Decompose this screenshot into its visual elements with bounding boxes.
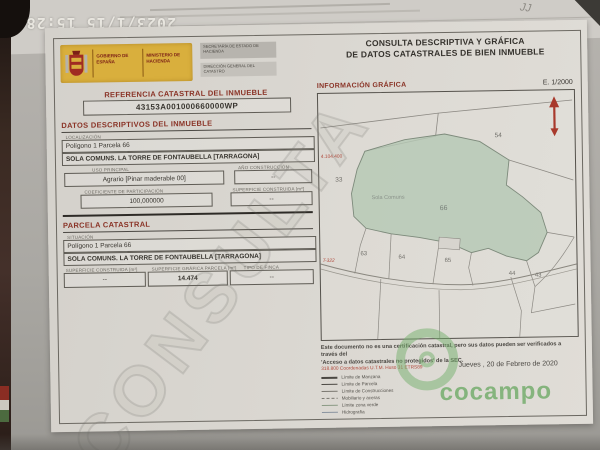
logo-divider (92, 50, 93, 78)
legend-line-sample (321, 376, 337, 378)
document-title: CONSULTA DESCRIPTIVA Y GRÁFICA DE DATOS … (316, 35, 574, 62)
logo-divider (142, 49, 143, 77)
map-legend: Límite de Manzana Límite de Parcela Lími… (321, 373, 393, 416)
legend-line-sample (321, 384, 337, 385)
direccion-box: DIRECCIÓN GENERAL DEL CATASTRO (200, 62, 276, 77)
spine-segment (0, 410, 9, 422)
legend-line-sample (322, 412, 338, 413)
legend-label: Límite zona verde (342, 402, 379, 408)
road-label: T-322 (323, 258, 336, 264)
spine-segment (0, 400, 9, 410)
cocampo-wordmark: cocampo (439, 377, 552, 407)
area-name-label: Sola Comuns (372, 195, 405, 202)
anio-value: -- (234, 169, 312, 184)
ministerio-label: MINISTERIO DE HACIENDA (146, 52, 190, 64)
legend-item: Hidrografía (322, 408, 394, 416)
handwritten-mark: JJ (519, 1, 532, 14)
escala-label: E. 1/2000 (543, 79, 573, 86)
spine-segment (0, 386, 9, 400)
legend-line-sample (322, 398, 338, 399)
spain-coat-of-arms-icon (64, 49, 88, 79)
gobierno-label: GOBIERNO DE ESPAÑA (96, 53, 140, 65)
document-date: Jueves , 20 de Febrero de 2020 (439, 360, 577, 369)
datos-heading: DATOS DESCRIPTIVOS DEL INMUEBLE (61, 117, 311, 133)
situacion-line2: SOLA COMUNS. LA TORRE DE FONTAUBELLA [TA… (63, 249, 316, 266)
section-divider (63, 211, 313, 217)
photo-bottom-shadow (0, 434, 600, 450)
secretaria-box: SECRETARÍA DE ESTADO DE HACIENDA (200, 42, 276, 59)
sup-construida-value: -- (64, 272, 146, 288)
uso-value: Agrario [Pinar maderable 00] (64, 170, 224, 187)
informacion-grafica-heading: INFORMACIÓN GRÁFICA (317, 82, 407, 90)
referencia-value: 43153A001000660000WP (83, 97, 291, 115)
parcela-heading: PARCELA CATASTRAL (63, 217, 313, 233)
legend-line-sample (322, 405, 338, 406)
parcel-63-label: 63 (360, 251, 367, 257)
superficie-value: -- (230, 191, 312, 206)
document-sheet: GOBIERNO DE ESPAÑA MINISTERIO DE HACIEND… (45, 20, 593, 432)
legend-label: Hidrografía (342, 409, 365, 414)
photo-of-cadastral-document: 2023/1/15 15:28 JJ GOBIERNO DE (0, 0, 600, 450)
left-column: GOBIERNO DE ESPAÑA MINISTERIO DE HACIEND… (60, 39, 316, 419)
coef-value: 100,000000 (80, 193, 212, 209)
cadastral-map: 54 33 66 Sola Comuns 63 64 65 44 43 4.10… (317, 89, 579, 341)
utm-coordinate-label: 4.104.400 (321, 154, 343, 160)
legend-line-sample (322, 391, 338, 392)
legend-label: Límite de Construcciones (342, 388, 394, 394)
legend-label: Límite de Manzana (341, 374, 380, 380)
sup-grafica-value: 14.474 (148, 270, 228, 286)
book-spine (0, 0, 11, 450)
parcel-54-label: 54 (495, 132, 503, 139)
parcel-43-label: 43 (535, 273, 542, 279)
parcel-44-label: 44 (509, 271, 516, 277)
cocampo-logo-inner-icon (419, 351, 435, 367)
localizacion-line2: SOLA COMUNS. LA TORRE DE FONTAUBELLA [TA… (62, 149, 315, 166)
subject-parcel-label: 66 (440, 205, 448, 212)
gobierno-logo: GOBIERNO DE ESPAÑA MINISTERIO DE HACIEND… (60, 43, 193, 83)
map-drawing: 54 33 66 Sola Comuns 63 64 65 44 43 4.10… (318, 90, 578, 340)
document-border: GOBIERNO DE ESPAÑA MINISTERIO DE HACIEND… (53, 30, 587, 424)
legend-label: Límite de Parcela (341, 381, 377, 387)
parcel-33-label: 33 (335, 177, 343, 184)
parcel-64-label: 64 (398, 255, 405, 261)
legend-label: Mobiliario y aceras (342, 395, 380, 401)
right-column: CONSULTA DESCRIPTIVA Y GRÁFICA DE DATOS … (316, 33, 580, 415)
parcel-65-label: 65 (445, 258, 452, 264)
tipo-finca-value: -- (230, 269, 314, 285)
